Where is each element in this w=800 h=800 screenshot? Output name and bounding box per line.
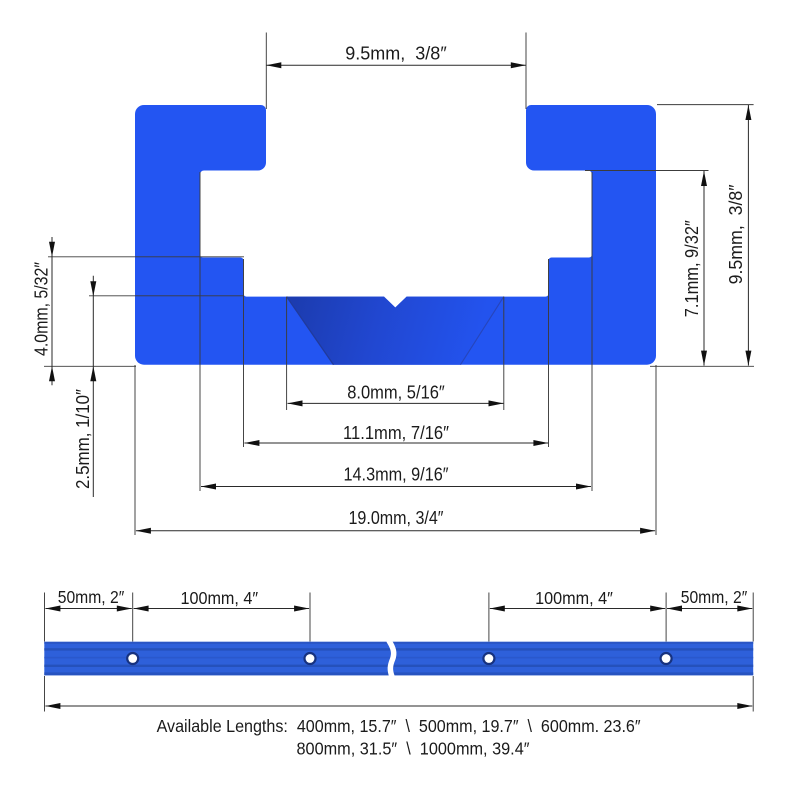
svg-text:4.0mm, 5/32″: 4.0mm, 5/32″ — [32, 261, 52, 356]
svg-text:9.5mm, 3/8″: 9.5mm, 3/8″ — [726, 184, 746, 285]
svg-text:2.5mm, 1/10″: 2.5mm, 1/10″ — [73, 388, 93, 489]
svg-text:50mm, 2″: 50mm, 2″ — [58, 587, 125, 607]
svg-text:8.0mm, 5/16″: 8.0mm, 5/16″ — [347, 383, 445, 403]
svg-text:11.1mm, 7/16″: 11.1mm, 7/16″ — [343, 423, 450, 443]
svg-text:7.1mm, 9/32″: 7.1mm, 9/32″ — [682, 220, 702, 318]
svg-text:50mm, 2″: 50mm, 2″ — [681, 587, 748, 607]
svg-text:9.5mm, 3/8″: 9.5mm, 3/8″ — [345, 43, 447, 63]
svg-text:Available Lengths: 400mm, 15.: Available Lengths: 400mm, 15.7″ \ 500mm,… — [157, 716, 641, 736]
svg-text:19.0mm, 3/4″: 19.0mm, 3/4″ — [349, 508, 445, 528]
svg-text:100mm, 4″: 100mm, 4″ — [180, 588, 258, 608]
svg-text:100mm, 4″: 100mm, 4″ — [535, 588, 613, 608]
svg-text:800mm, 31.5″ \ 1000mm, 39.4″: 800mm, 31.5″ \ 1000mm, 39.4″ — [297, 739, 530, 759]
svg-text:14.3mm, 9/16″: 14.3mm, 9/16″ — [344, 465, 450, 485]
